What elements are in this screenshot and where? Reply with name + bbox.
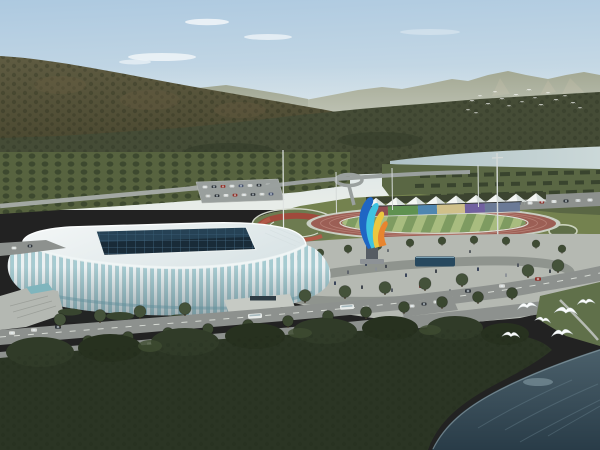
floodlight-pole [392, 168, 393, 210]
floodlight-pole [478, 165, 479, 207]
entrance-doorway [250, 296, 276, 301]
banner-segment [437, 204, 465, 214]
car [499, 284, 505, 287]
banner-segment [465, 203, 485, 213]
banner-segment [418, 205, 437, 215]
car [409, 305, 414, 308]
car [421, 303, 426, 306]
floodlight-pole [336, 172, 337, 214]
tree [282, 315, 293, 327]
banner-segment [485, 202, 520, 212]
car [31, 328, 37, 331]
parking-lot [196, 179, 284, 203]
car [9, 331, 15, 334]
car [535, 277, 541, 280]
water-highlight [523, 378, 553, 386]
bus [248, 313, 262, 319]
tall-mast [497, 153, 498, 240]
bus [340, 304, 354, 310]
architectural-rendering [0, 0, 600, 450]
car [465, 289, 471, 292]
scene-svg [0, 0, 600, 450]
